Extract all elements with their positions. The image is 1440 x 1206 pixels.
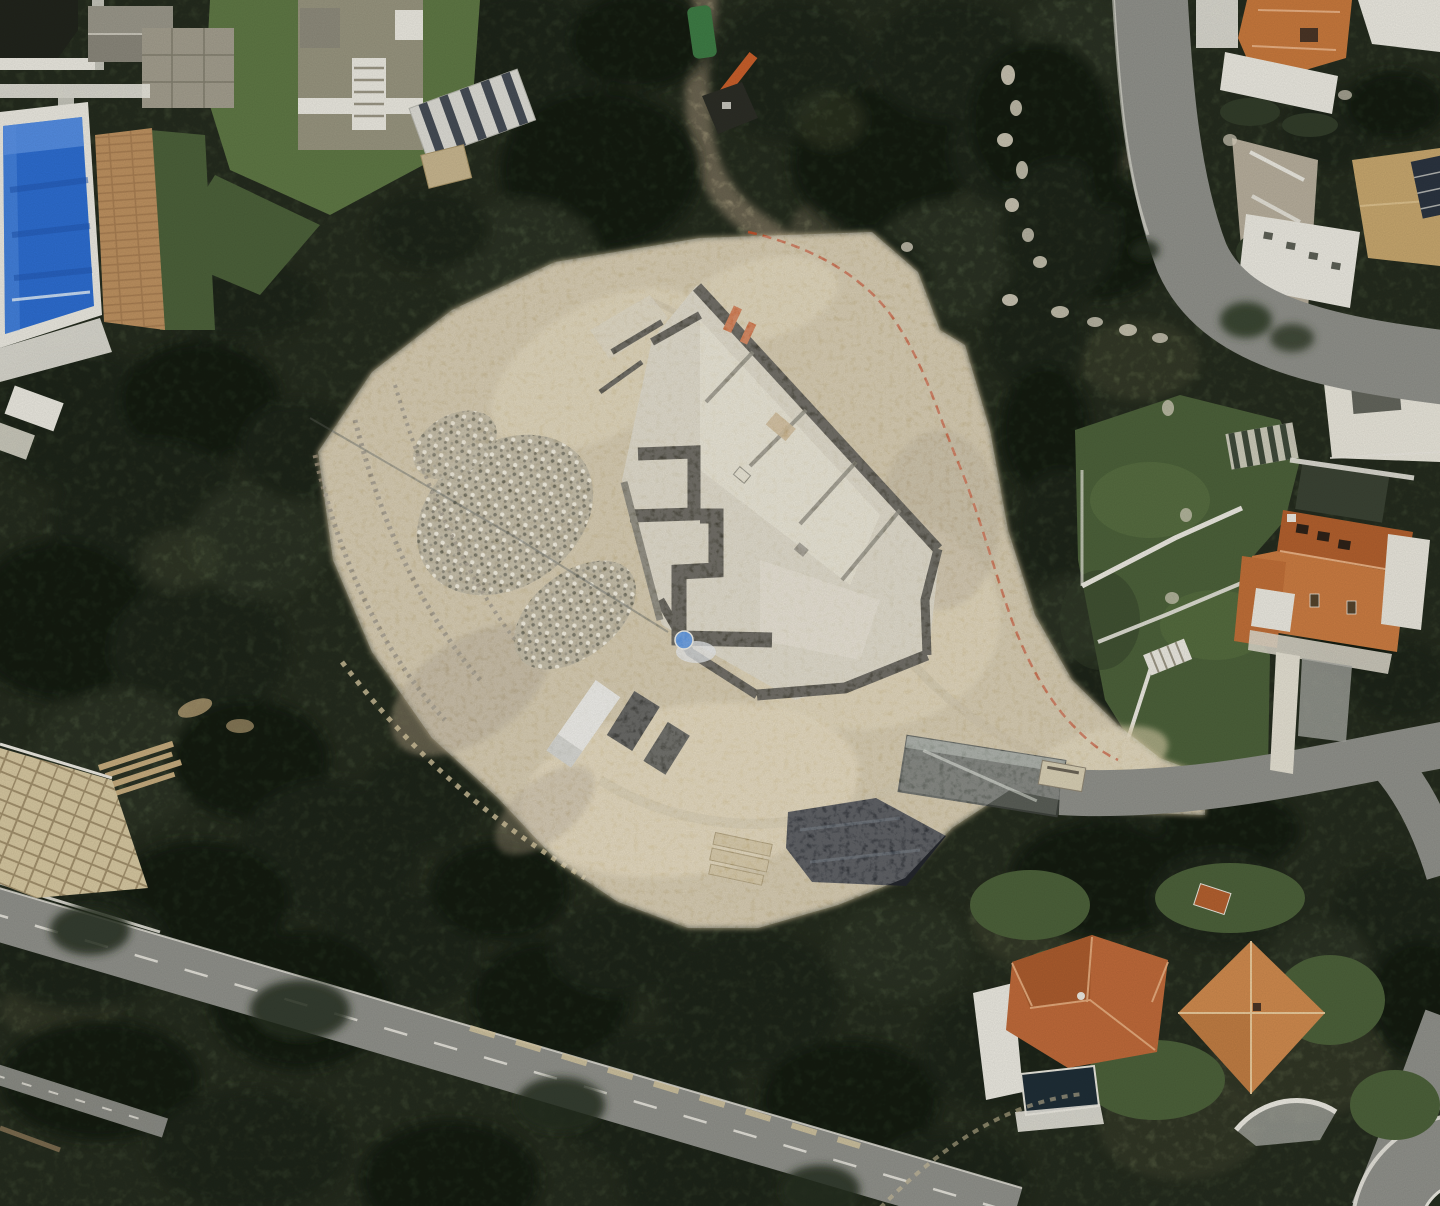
- photo-grain: [0, 0, 1440, 1206]
- satellite-map-view[interactable]: [0, 0, 1440, 1206]
- aerial-photo: [0, 0, 1440, 1206]
